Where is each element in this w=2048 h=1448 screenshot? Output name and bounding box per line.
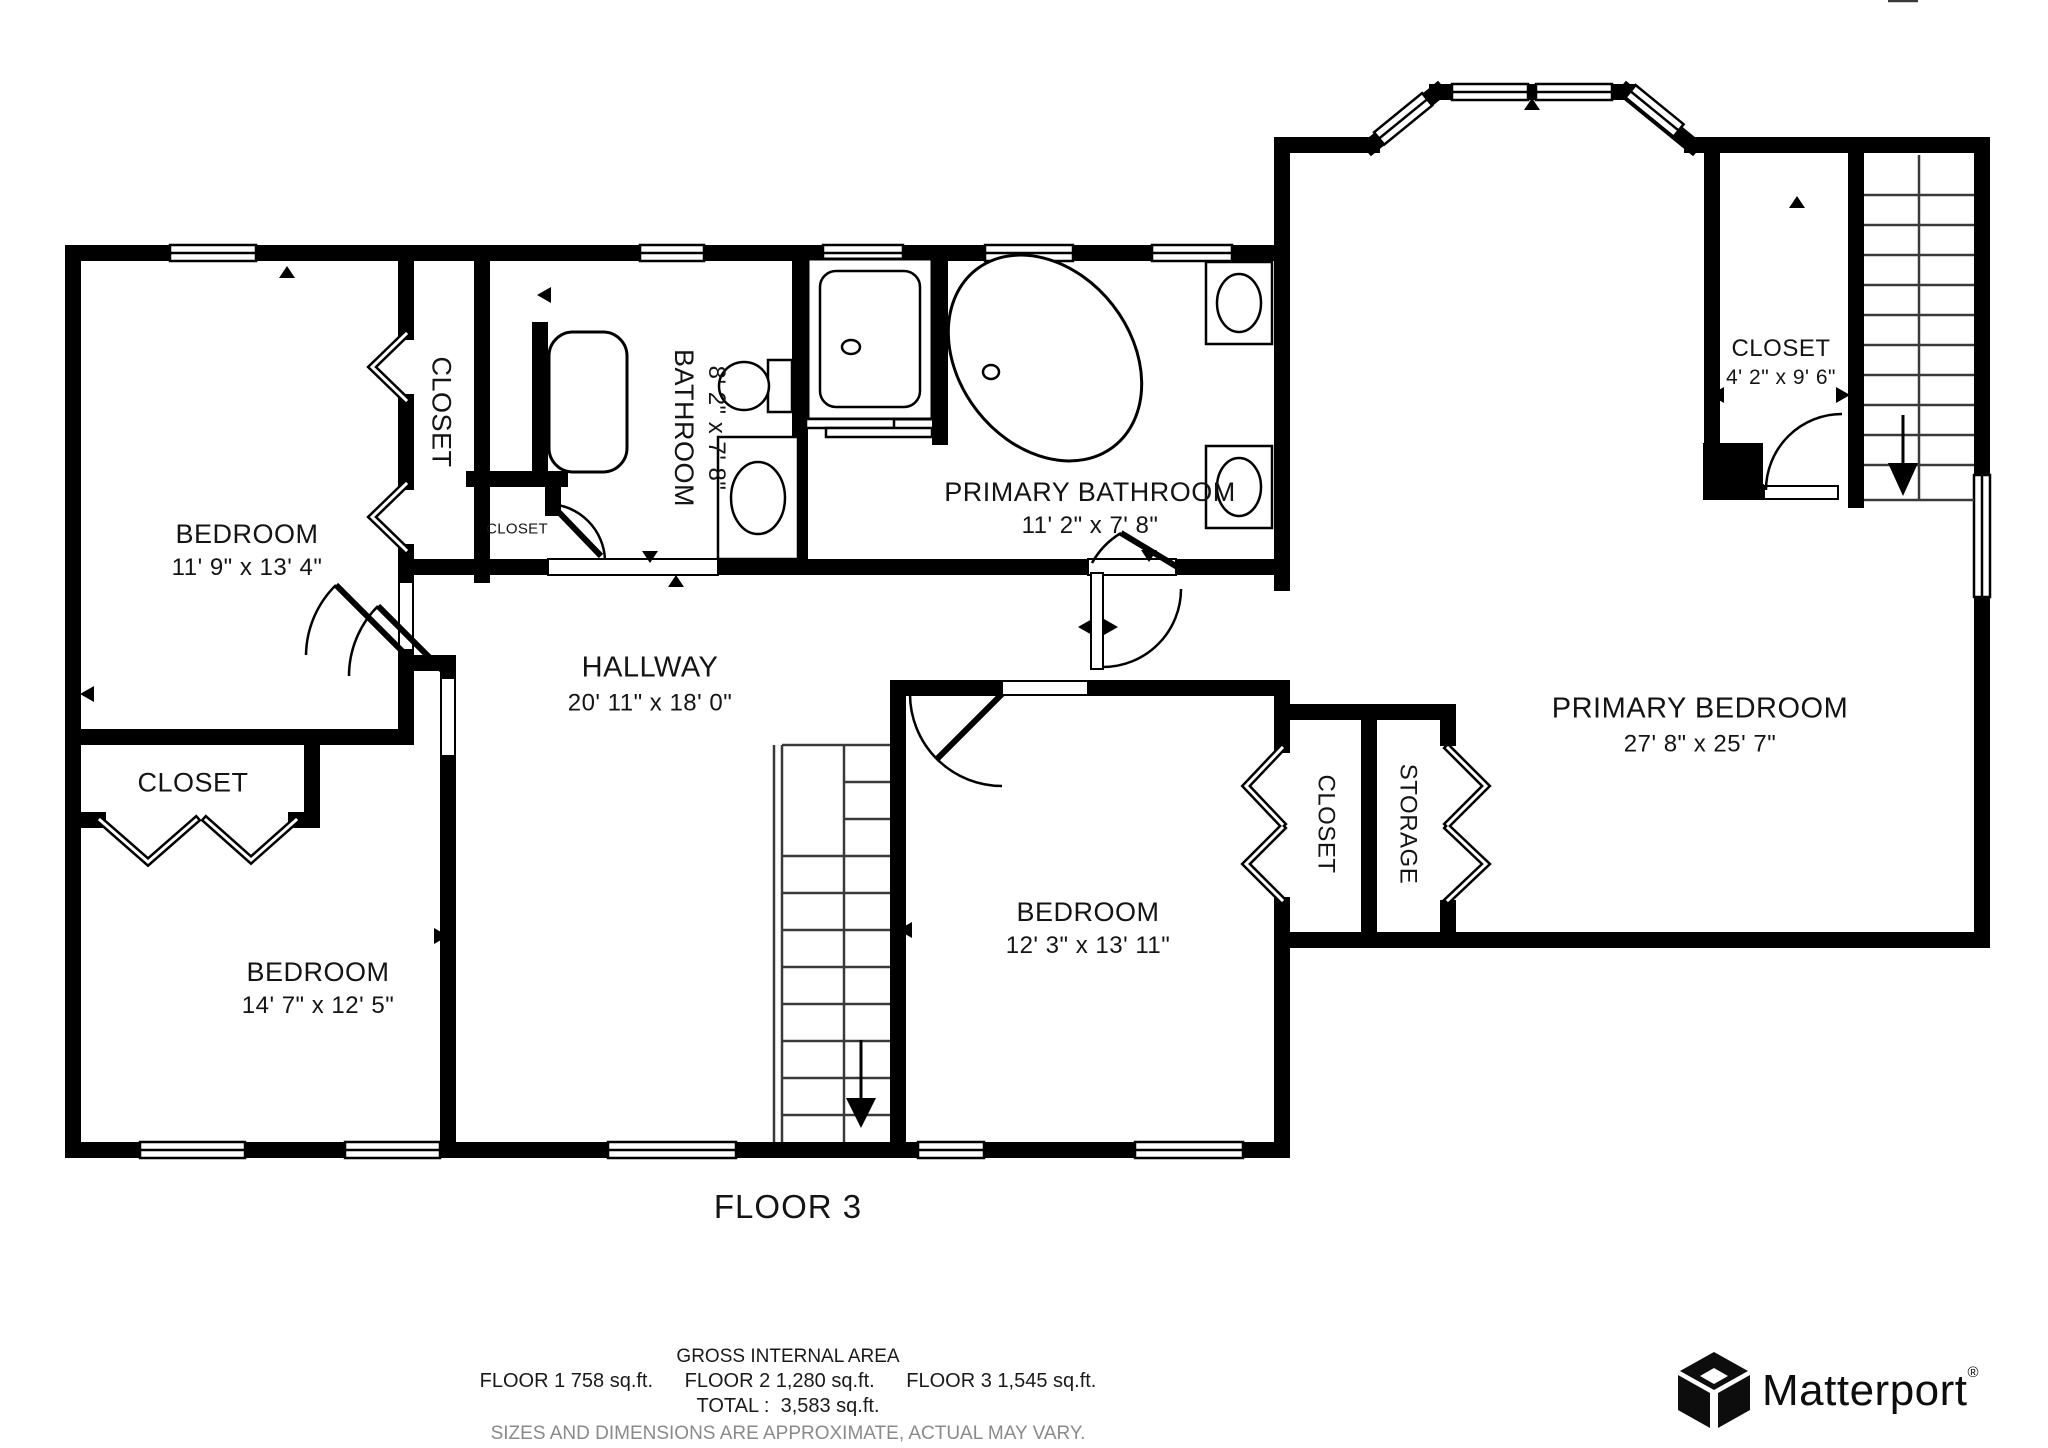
floor-areas: FLOOR 1 758 sq.ft. FLOOR 2 1,280 sq.ft. … (467, 1370, 1110, 1393)
room-label-bedroom-tl: BEDROOM 11' 9" x 13' 4" (172, 517, 323, 583)
room-name: CLOSET (486, 519, 548, 539)
window (1452, 84, 1528, 100)
floor-title: FLOOR 3 (714, 1188, 862, 1226)
door-frame (1091, 573, 1103, 669)
floor3-area: FLOOR 3 1,545 sq.ft. (906, 1370, 1096, 1392)
doors (100, 334, 1842, 900)
matterport-logo-text: Matterport® (1762, 1364, 1979, 1416)
room-name: BEDROOM (1006, 895, 1171, 930)
room-name: CLOSET (423, 356, 458, 467)
bathtub (549, 332, 627, 472)
wall-corner-block (1703, 443, 1763, 500)
room-dims: 11' 2" x 7' 8" (944, 510, 1236, 541)
room-name: CLOSET (137, 765, 248, 800)
area-summary: GROSS INTERNAL AREA FLOOR 1 758 sq.ft. F… (467, 1346, 1110, 1445)
cased-opening (548, 559, 718, 575)
door-panel (1764, 486, 1838, 499)
matterport-logo-icon (1676, 1350, 1752, 1430)
room-label-bedroom-center: BEDROOM 12' 3" x 13' 11" (1006, 895, 1171, 961)
door-swing-arc (1766, 414, 1842, 490)
disclaimer: SIZES AND DIMENSIONS ARE APPROXIMATE, AC… (467, 1423, 1110, 1445)
room-label-bathroom: 8' 2" x 7' 8" BATHROOM (666, 349, 732, 507)
window (608, 1142, 736, 1158)
room-dims: 14' 7" x 12' 5" (242, 990, 394, 1021)
room-dims: 27' 8" x 25' 7" (1552, 728, 1848, 759)
window (140, 1142, 245, 1158)
door-panel (1002, 681, 1088, 695)
room-dims: 12' 3" x 13' 11" (1006, 930, 1171, 961)
window (1625, 85, 1683, 137)
gross-area-label: GROSS INTERNAL AREA (467, 1346, 1110, 1368)
room-name: PRIMARY BATHROOM (944, 475, 1236, 510)
window (345, 1142, 440, 1158)
room-name: STORAGE (1392, 764, 1423, 884)
floor-plan-page: BEDROOM 11' 9" x 13' 4" CLOSET CLOSET 8'… (0, 0, 2048, 1448)
room-name: BATHROOM (666, 349, 701, 507)
room-label-closet-small: CLOSET (486, 519, 548, 539)
room-name: HALLWAY (568, 650, 733, 688)
matterport-branding: Matterport® (1676, 1350, 1979, 1430)
stairs-upper-right (1864, 1, 1974, 500)
shower (806, 259, 932, 437)
window (1374, 93, 1432, 145)
window (1536, 84, 1612, 100)
window (170, 245, 256, 261)
floor1-area: FLOOR 1 758 sq.ft. (480, 1370, 653, 1392)
total-area: TOTAL : 3,583 sq.ft. (467, 1395, 1110, 1418)
room-name: BEDROOM (172, 517, 323, 552)
room-label-primary-bathroom: PRIMARY BATHROOM 11' 2" x 7' 8" (944, 475, 1236, 541)
floor2-area: FLOOR 2 1,280 sq.ft. (685, 1370, 875, 1392)
door-swing-arc (306, 585, 336, 655)
room-name: PRIMARY BEDROOM (1552, 691, 1848, 729)
room-label-hallway: HALLWAY 20' 11" x 18' 0" (568, 650, 733, 719)
stairs-main (774, 745, 890, 1142)
room-label-bedroom-ll: BEDROOM 14' 7" x 12' 5" (242, 955, 394, 1021)
door-panel (441, 678, 455, 756)
room-name: CLOSET (1310, 774, 1341, 873)
brand-name: Matterport (1762, 1366, 1968, 1415)
window (1974, 475, 1990, 597)
room-dims: 11' 9" x 13' 4" (172, 552, 323, 583)
room-label-primary-bedroom: PRIMARY BEDROOM 27' 8" x 25' 7" (1552, 691, 1848, 760)
registered-mark: ® (1968, 1364, 1980, 1381)
room-label-closet-pb: CLOSET (1310, 774, 1341, 873)
room-label-closet-tr: CLOSET 4' 2" x 9' 6" (1726, 333, 1836, 391)
room-dims: 8' 2" x 7' 8" (701, 349, 732, 507)
window (1135, 1142, 1243, 1158)
window (918, 1142, 984, 1158)
sink (1206, 262, 1272, 344)
window (1152, 245, 1232, 261)
room-label-closet-strip: CLOSET (423, 356, 458, 467)
room-label-storage: STORAGE (1392, 764, 1423, 884)
stairs-down-arrow (1888, 463, 1918, 496)
room-dims: 20' 11" x 18' 0" (568, 687, 733, 718)
room-label-closet-ll: CLOSET (137, 765, 248, 800)
room-name: CLOSET (1726, 333, 1836, 364)
room-dims: 4' 2" x 9' 6" (1726, 364, 1836, 391)
stairs-down-arrow (846, 1098, 876, 1128)
room-name: BEDROOM (242, 955, 394, 990)
door-leaf (937, 694, 1002, 759)
window (640, 245, 704, 261)
